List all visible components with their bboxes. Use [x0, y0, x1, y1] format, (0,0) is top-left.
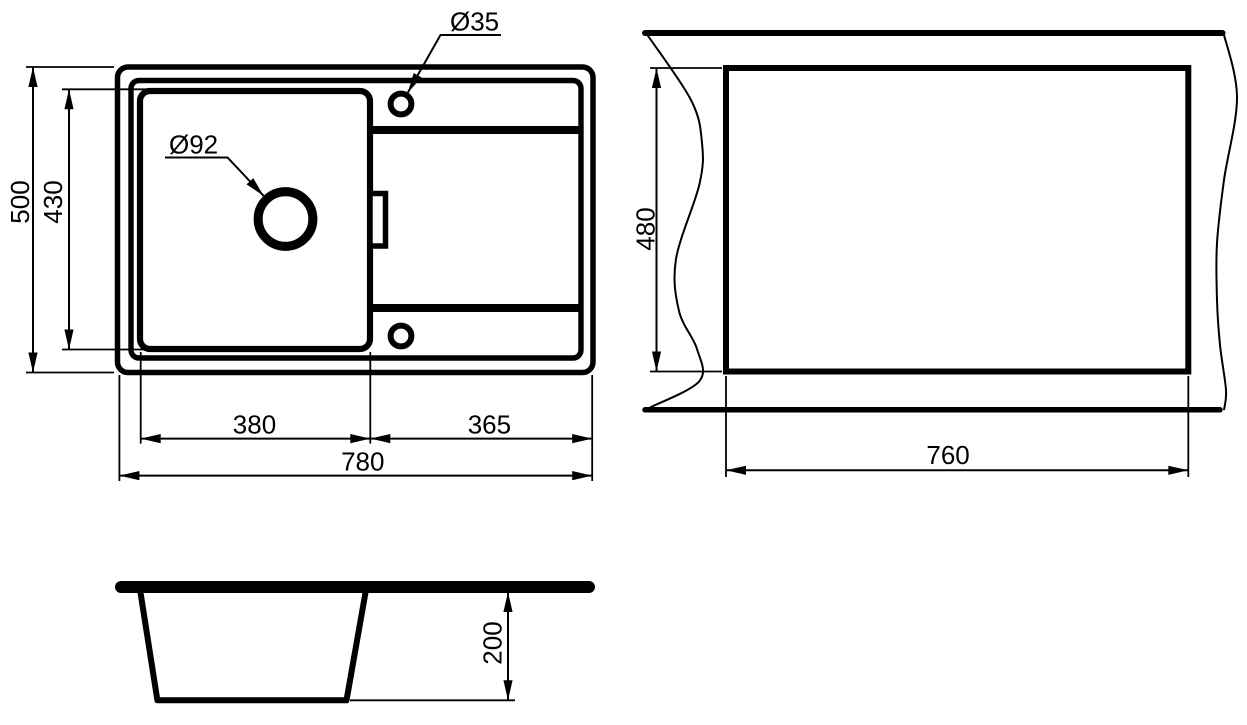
svg-text:365: 365 [468, 410, 511, 440]
svg-text:500: 500 [5, 180, 35, 223]
svg-text:760: 760 [926, 440, 969, 470]
svg-text:Ø92: Ø92 [169, 130, 218, 160]
svg-text:200: 200 [478, 621, 508, 664]
svg-text:380: 380 [233, 410, 276, 440]
svg-text:480: 480 [631, 207, 661, 250]
svg-text:430: 430 [38, 180, 68, 223]
svg-text:780: 780 [341, 446, 384, 476]
svg-text:Ø35: Ø35 [450, 7, 499, 37]
